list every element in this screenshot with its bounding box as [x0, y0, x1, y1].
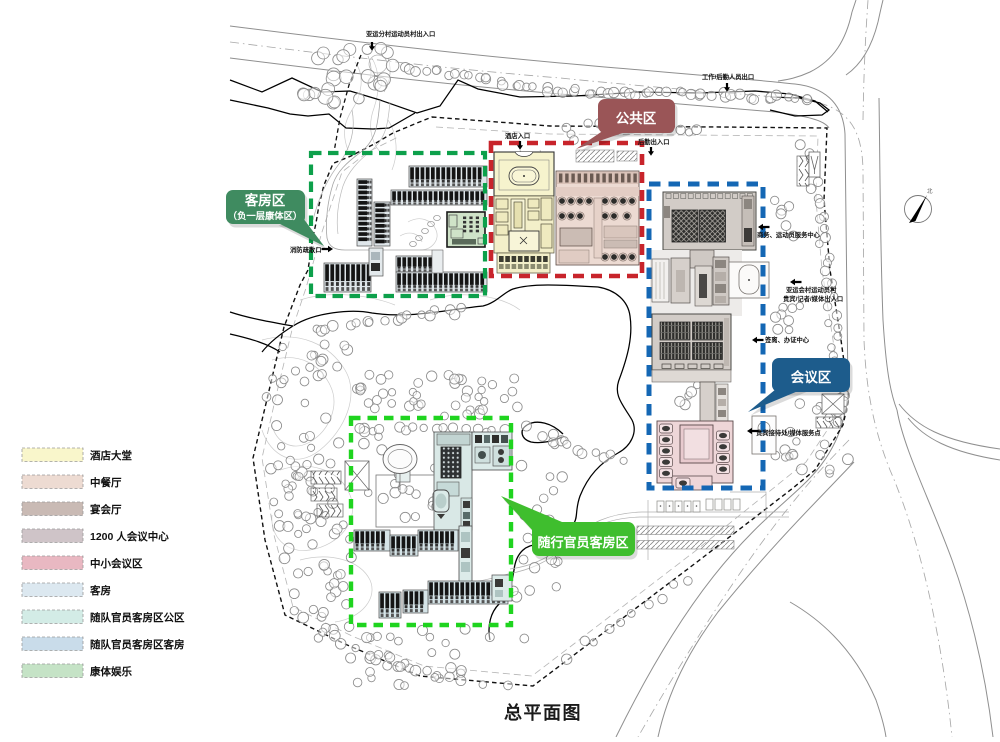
- svg-text:亚运会村运动员村: 亚运会村运动员村: [786, 285, 837, 294]
- svg-text:工作/后勤人员出口: 工作/后勤人员出口: [702, 72, 754, 81]
- svg-text:随队官员客房区公区: 随队官员客房区公区: [90, 611, 185, 624]
- svg-text:酒店大堂: 酒店大堂: [90, 449, 132, 462]
- svg-text:中小会议区: 中小会议区: [90, 557, 143, 570]
- svg-text:消防疏散口: 消防疏散口: [290, 245, 321, 254]
- svg-text:宴会厅: 宴会厅: [90, 503, 122, 516]
- svg-text:客房区: 客房区: [244, 192, 286, 208]
- svg-text:会议区: 会议区: [791, 369, 832, 385]
- svg-text:（负一层康体区）: （负一层康体区）: [228, 210, 302, 221]
- svg-text:随队官员客房区客房: 随队官员客房区客房: [90, 638, 185, 651]
- svg-text:随行官员客房区: 随行官员客房区: [537, 535, 628, 550]
- svg-text:康体娱乐: 康体娱乐: [90, 665, 132, 678]
- svg-text:贵宾接待处/媒体服务点: 贵宾接待处/媒体服务点: [756, 428, 821, 437]
- svg-text:贵宾/记者/媒体出入口: 贵宾/记者/媒体出入口: [783, 294, 843, 303]
- svg-text:北: 北: [927, 187, 933, 195]
- svg-text:商务、运动员服务中心: 商务、运动员服务中心: [757, 230, 821, 239]
- svg-text:中餐厅: 中餐厅: [90, 476, 122, 489]
- svg-text:签离、办证中心: 签离、办证中心: [764, 335, 810, 344]
- svg-text:后勤出入口: 后勤出入口: [638, 137, 669, 146]
- svg-text:亚运分村运动员村出入口: 亚运分村运动员村出入口: [366, 29, 435, 38]
- svg-text:1200 人会议中心: 1200 人会议中心: [90, 530, 169, 543]
- svg-text:酒店入口: 酒店入口: [505, 131, 530, 140]
- svg-text:公共区: 公共区: [616, 110, 657, 126]
- svg-text:总平面图: 总平面图: [504, 702, 582, 723]
- svg-text:客房: 客房: [89, 584, 111, 597]
